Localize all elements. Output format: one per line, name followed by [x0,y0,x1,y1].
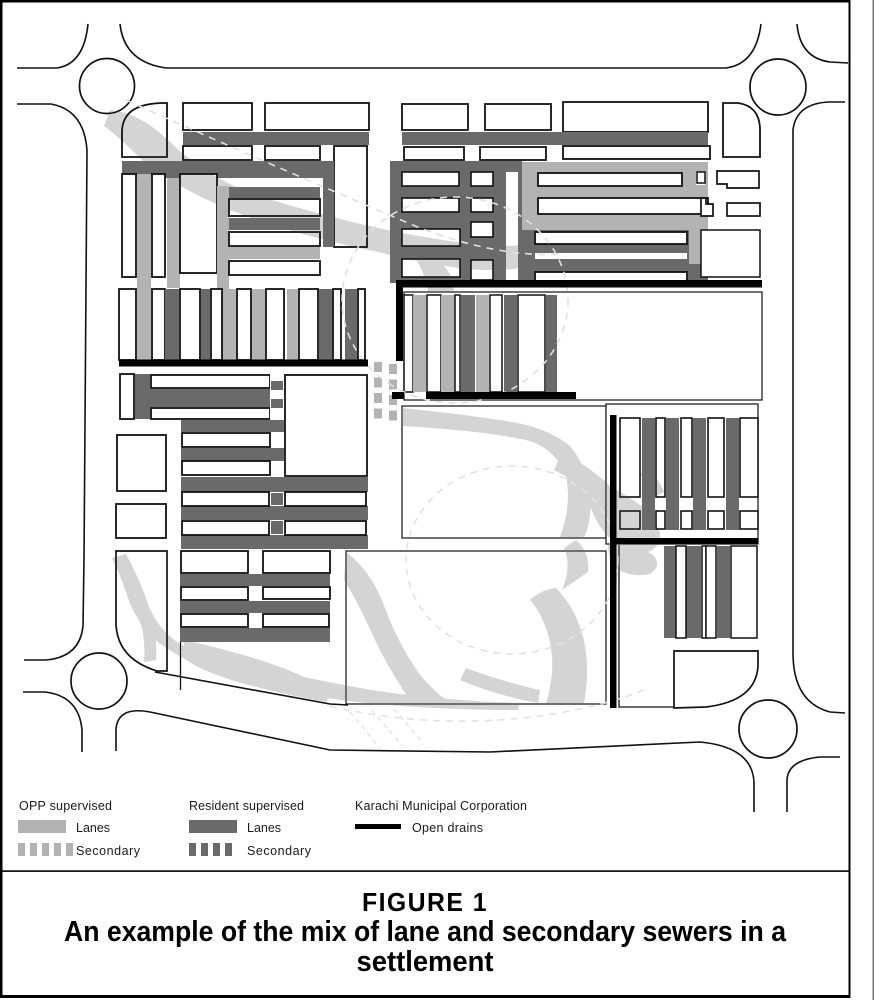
svg-text:OPP supervised: OPP supervised [19,799,112,813]
svg-text:Resident supervised: Resident supervised [189,799,304,813]
svg-text:Secondary: Secondary [76,844,141,858]
svg-text:FIGURE 1: FIGURE 1 [362,887,488,917]
svg-text:An example of the mix of lane: An example of the mix of lane and second… [64,916,787,948]
svg-text:Open drains: Open drains [412,821,483,835]
svg-text:Secondary: Secondary [247,844,312,858]
svg-text:settlement: settlement [357,946,494,978]
svg-text:Lanes: Lanes [76,821,110,835]
svg-text:Karachi Municipal Corporation: Karachi Municipal Corporation [355,799,527,813]
svg-text:Lanes: Lanes [247,821,281,835]
